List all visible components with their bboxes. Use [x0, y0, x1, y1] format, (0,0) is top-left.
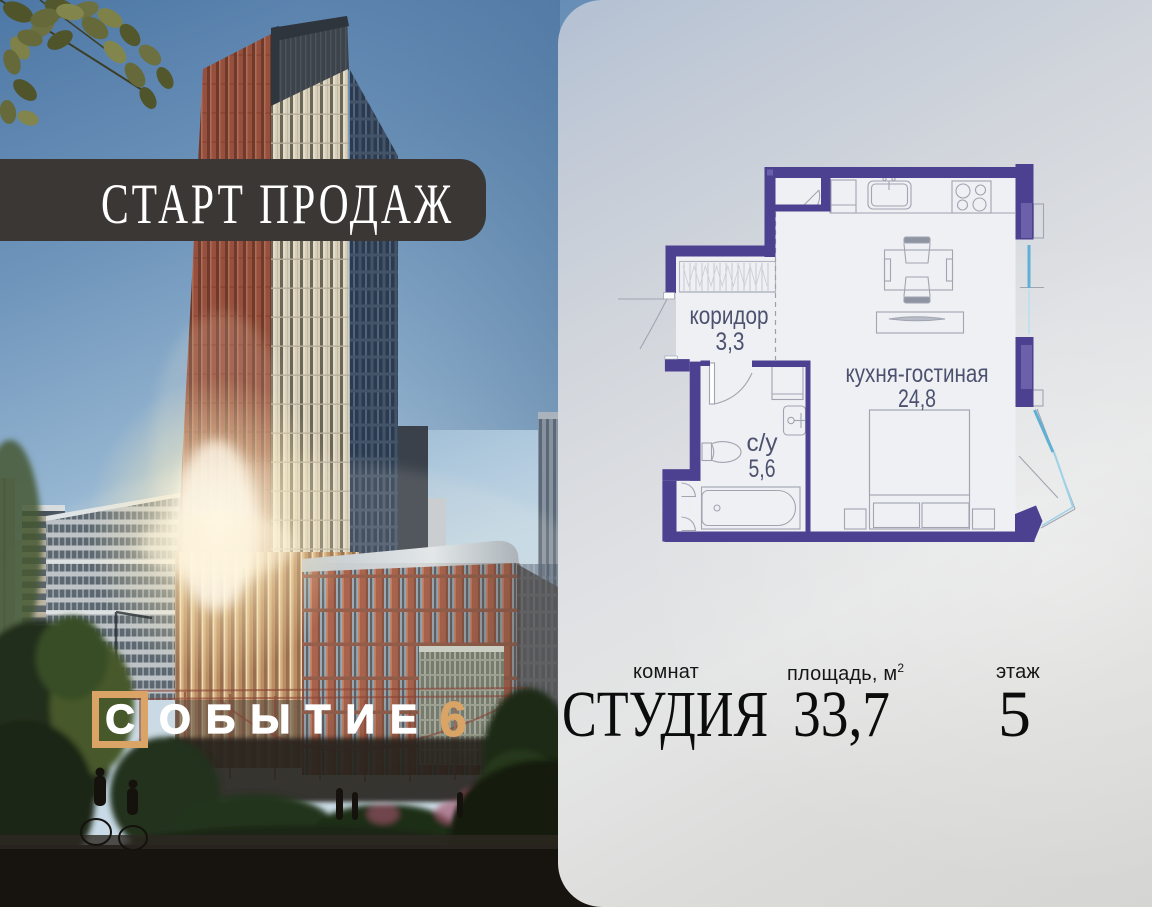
- svg-text:коридор: коридор: [690, 302, 769, 330]
- svg-text:кухня-гостиная: кухня-гостиная: [846, 360, 989, 388]
- svg-text:3,3: 3,3: [716, 328, 745, 356]
- svg-text:с/у: с/у: [747, 429, 778, 457]
- svg-text:5,6: 5,6: [749, 455, 776, 483]
- svg-text:24,8: 24,8: [898, 385, 936, 413]
